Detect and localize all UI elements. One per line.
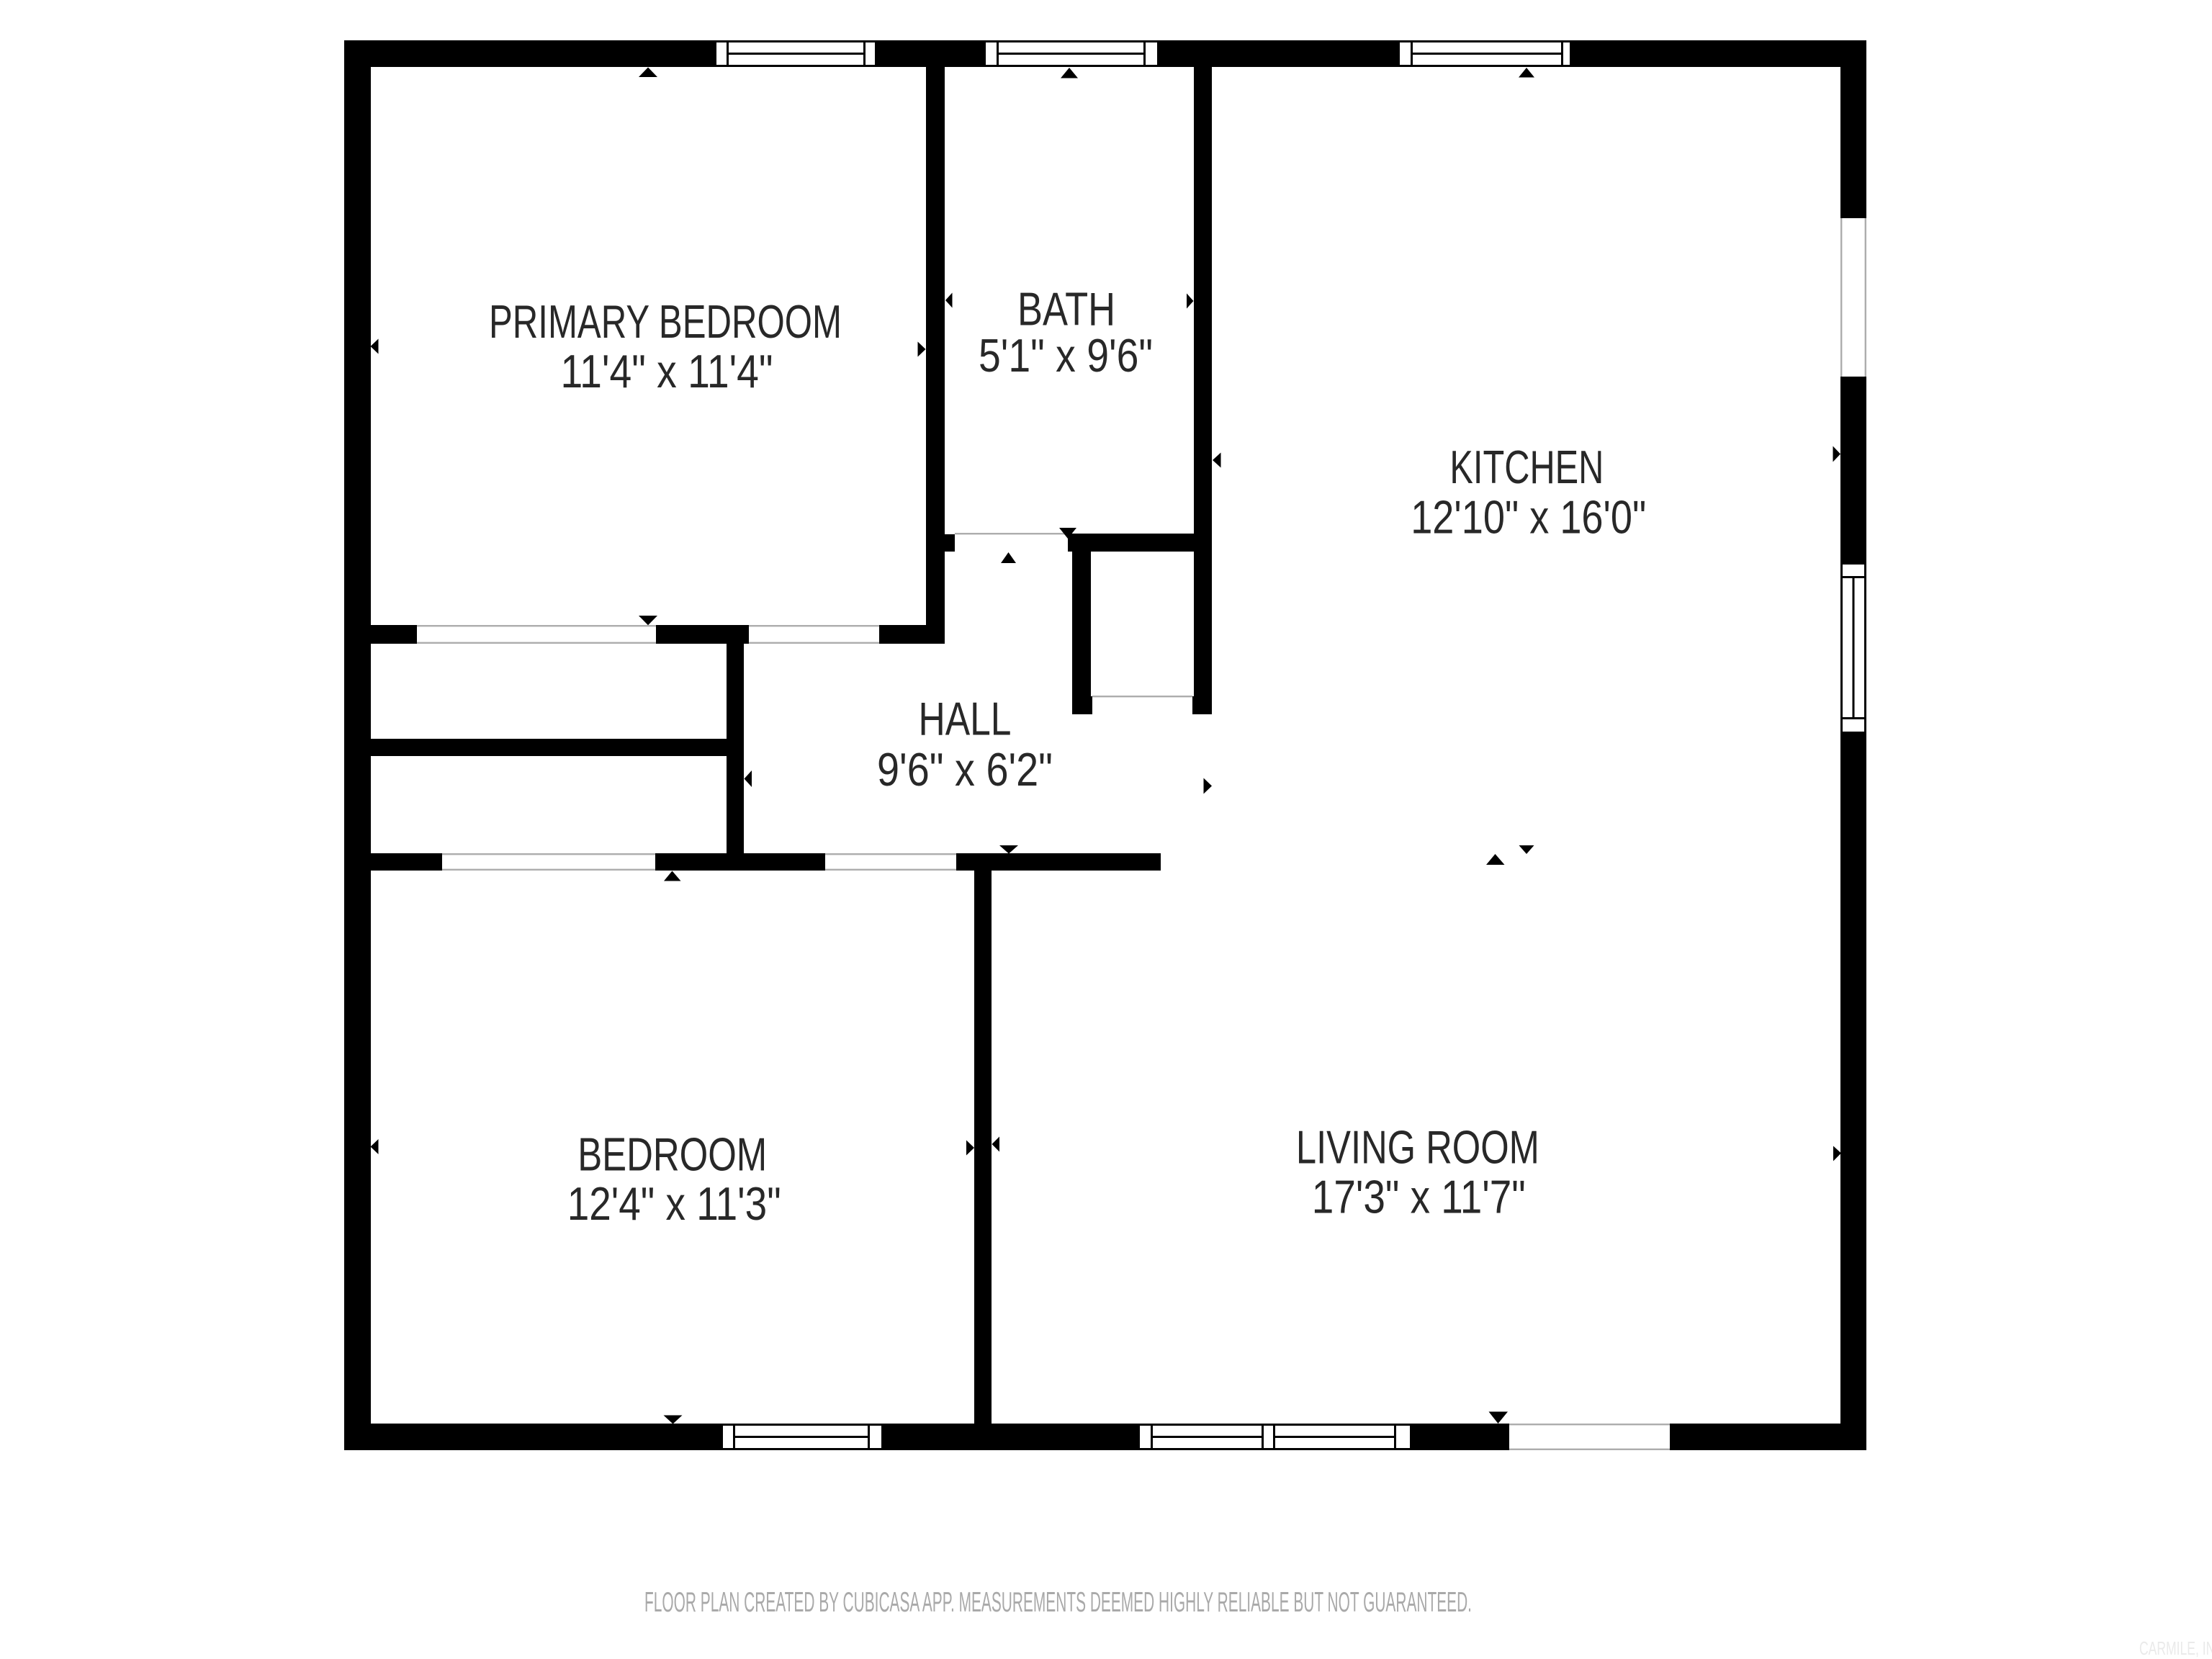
svg-text:BEDROOM: BEDROOM [577,1128,767,1181]
svg-text:BATH: BATH [1017,282,1115,335]
svg-text:9'6" x 6'2": 9'6" x 6'2" [877,743,1053,796]
svg-text:CARMILE, INC: CARMILE, INC [2139,1637,2212,1659]
svg-text:HALL: HALL [919,693,1012,745]
svg-text:PRIMARY BEDROOM: PRIMARY BEDROOM [489,295,842,348]
svg-text:17'3" x 11'7": 17'3" x 11'7" [1312,1171,1526,1223]
svg-text:12'4" x 11'3": 12'4" x 11'3" [567,1177,781,1230]
svg-text:LIVING ROOM: LIVING ROOM [1296,1121,1539,1174]
svg-text:KITCHEN: KITCHEN [1449,441,1604,493]
svg-text:12'10" x 16'0": 12'10" x 16'0" [1411,491,1646,544]
svg-text:FLOOR PLAN CREATED BY CUBICASA: FLOOR PLAN CREATED BY CUBICASA APP. MEAS… [644,1587,1472,1618]
svg-text:5'1" x 9'6": 5'1" x 9'6" [979,329,1153,382]
svg-text:11'4" x 11'4": 11'4" x 11'4" [561,345,773,397]
